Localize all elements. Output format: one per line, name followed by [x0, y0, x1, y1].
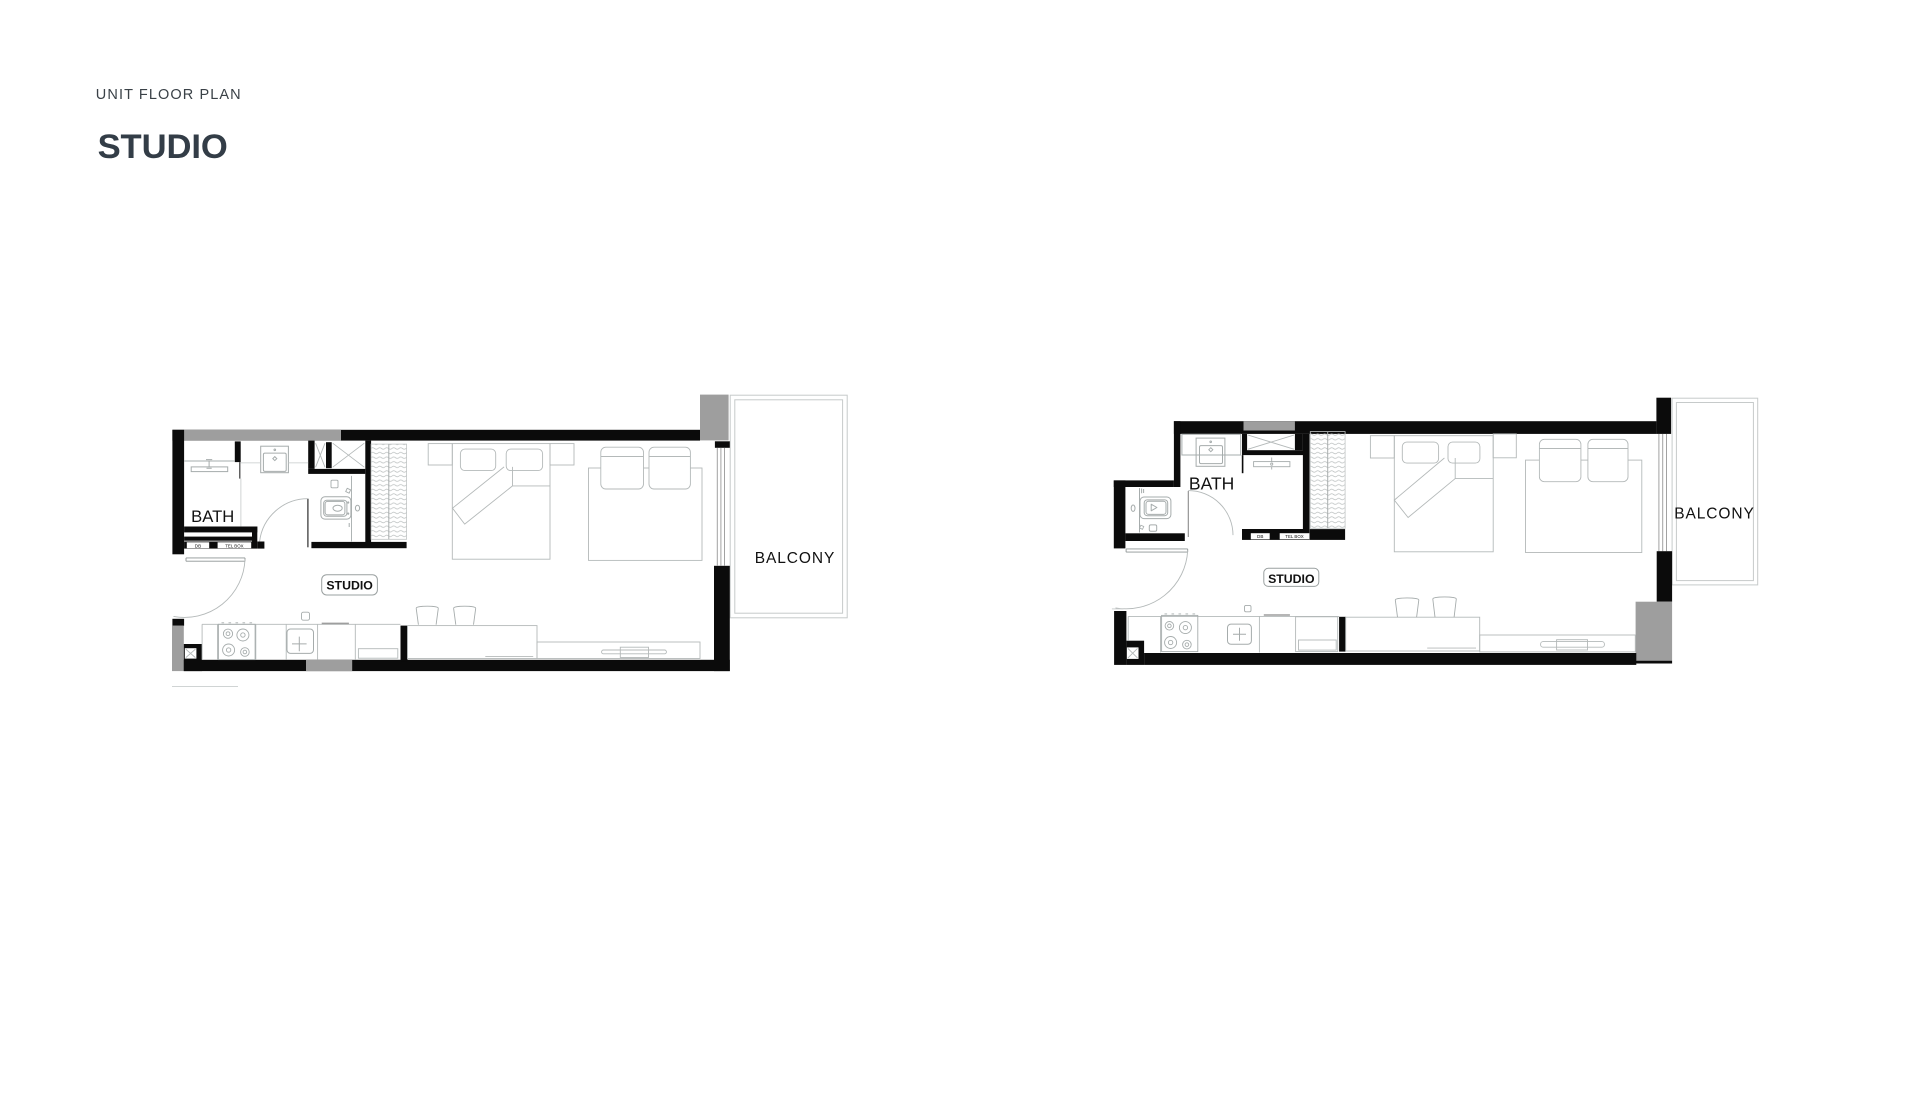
svg-text:TEL BOX: TEL BOX: [225, 543, 243, 548]
svg-text:BALCONY: BALCONY: [755, 550, 835, 567]
svg-text:BATH: BATH: [1189, 473, 1234, 493]
svg-text:STUDIO: STUDIO: [1268, 572, 1315, 586]
svg-text:DB: DB: [1257, 534, 1263, 539]
svg-text:STUDIO: STUDIO: [326, 579, 373, 593]
svg-text:BATH: BATH: [191, 507, 234, 526]
svg-text:BALCONY: BALCONY: [1674, 506, 1754, 523]
svg-text:TEL BOX: TEL BOX: [1285, 534, 1303, 539]
svg-text:DB: DB: [195, 543, 201, 548]
